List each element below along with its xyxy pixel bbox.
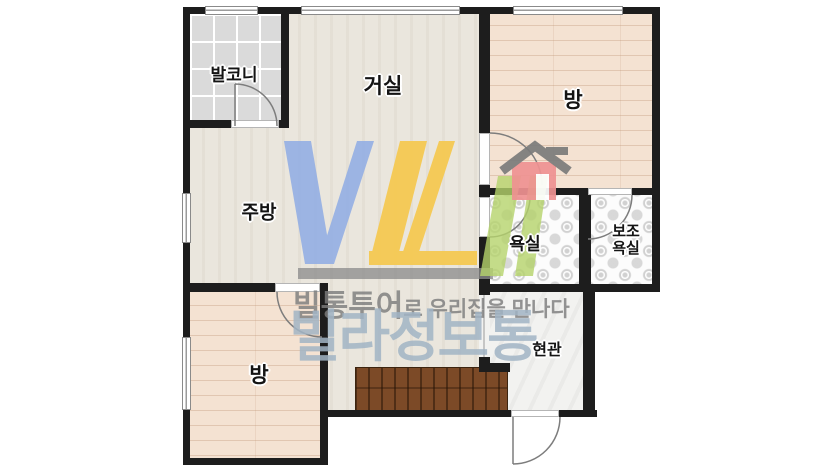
- label-bedroom-bottom: 방: [249, 359, 268, 389]
- label-bathroom: 욕실: [509, 230, 540, 255]
- window-kitchen-left: [182, 193, 191, 243]
- label-aux-bathroom: 보조 욕실: [612, 223, 640, 257]
- label-aux-line1: 보조: [612, 223, 640, 240]
- window-living-top: [301, 6, 460, 15]
- window-balcony-top: [205, 6, 258, 15]
- door-opening-entrance: [511, 410, 559, 417]
- door-opening-balcony: [231, 120, 279, 128]
- wall-bath-divider: [579, 195, 591, 292]
- door-opening-bedroom-top: [479, 133, 490, 185]
- wall-leftroom-bottom: [183, 458, 328, 465]
- label-entrance: 현관: [532, 336, 561, 360]
- label-living-room: 거실: [364, 70, 403, 100]
- wall-top-right-corner: [623, 7, 660, 14]
- door-opening-bathroom: [479, 197, 490, 237]
- shoe-cabinet-deck: [355, 367, 508, 412]
- floor-plan: 빌통투어로 우리집을 만나다 빌라정보통 발코니 거실 방 주방 욕실 보조 욕…: [0, 0, 840, 472]
- wall-entrance-right: [583, 292, 595, 417]
- door-arc-entrance: [513, 417, 560, 464]
- label-balcony: 발코니: [211, 61, 258, 86]
- wall-bedroom-bottom: [479, 188, 660, 195]
- door-opening-aux-bathroom: [588, 188, 632, 195]
- window-bedroom-top: [513, 6, 623, 15]
- wall-right-upper: [652, 7, 660, 292]
- wall-balcony-right: [281, 7, 289, 128]
- label-aux-line2: 욕실: [612, 240, 640, 257]
- window-bedroom-bottom-left: [182, 337, 191, 410]
- watermark-brand: 빌라정보통: [289, 308, 537, 367]
- label-bedroom-top: 방: [563, 84, 582, 114]
- label-kitchen: 주방: [242, 198, 277, 225]
